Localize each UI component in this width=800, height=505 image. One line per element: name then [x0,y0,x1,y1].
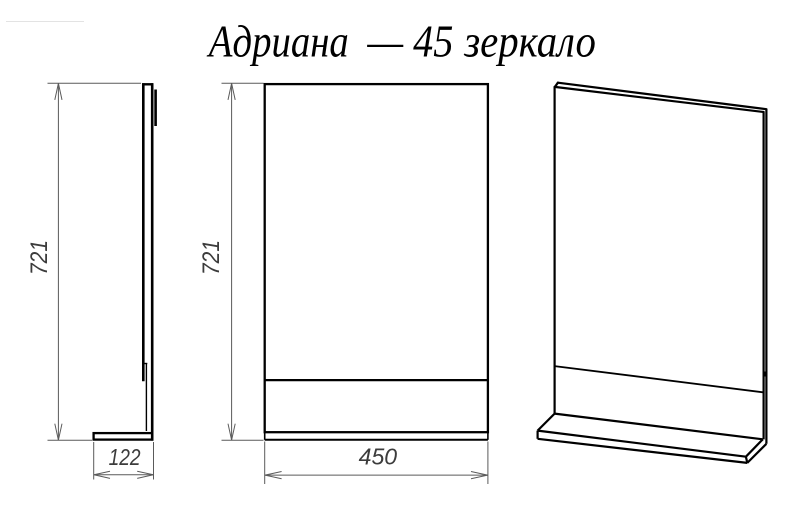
svg-text:— 45: — 45 [367,15,454,66]
svg-text:450: 450 [359,444,398,470]
svg-text:Адриана: Адриана [206,15,349,66]
svg-text:721: 721 [198,240,225,275]
svg-text:зеркало: зеркало [463,15,596,66]
svg-text:122: 122 [109,444,141,470]
svg-text:721: 721 [26,240,53,275]
